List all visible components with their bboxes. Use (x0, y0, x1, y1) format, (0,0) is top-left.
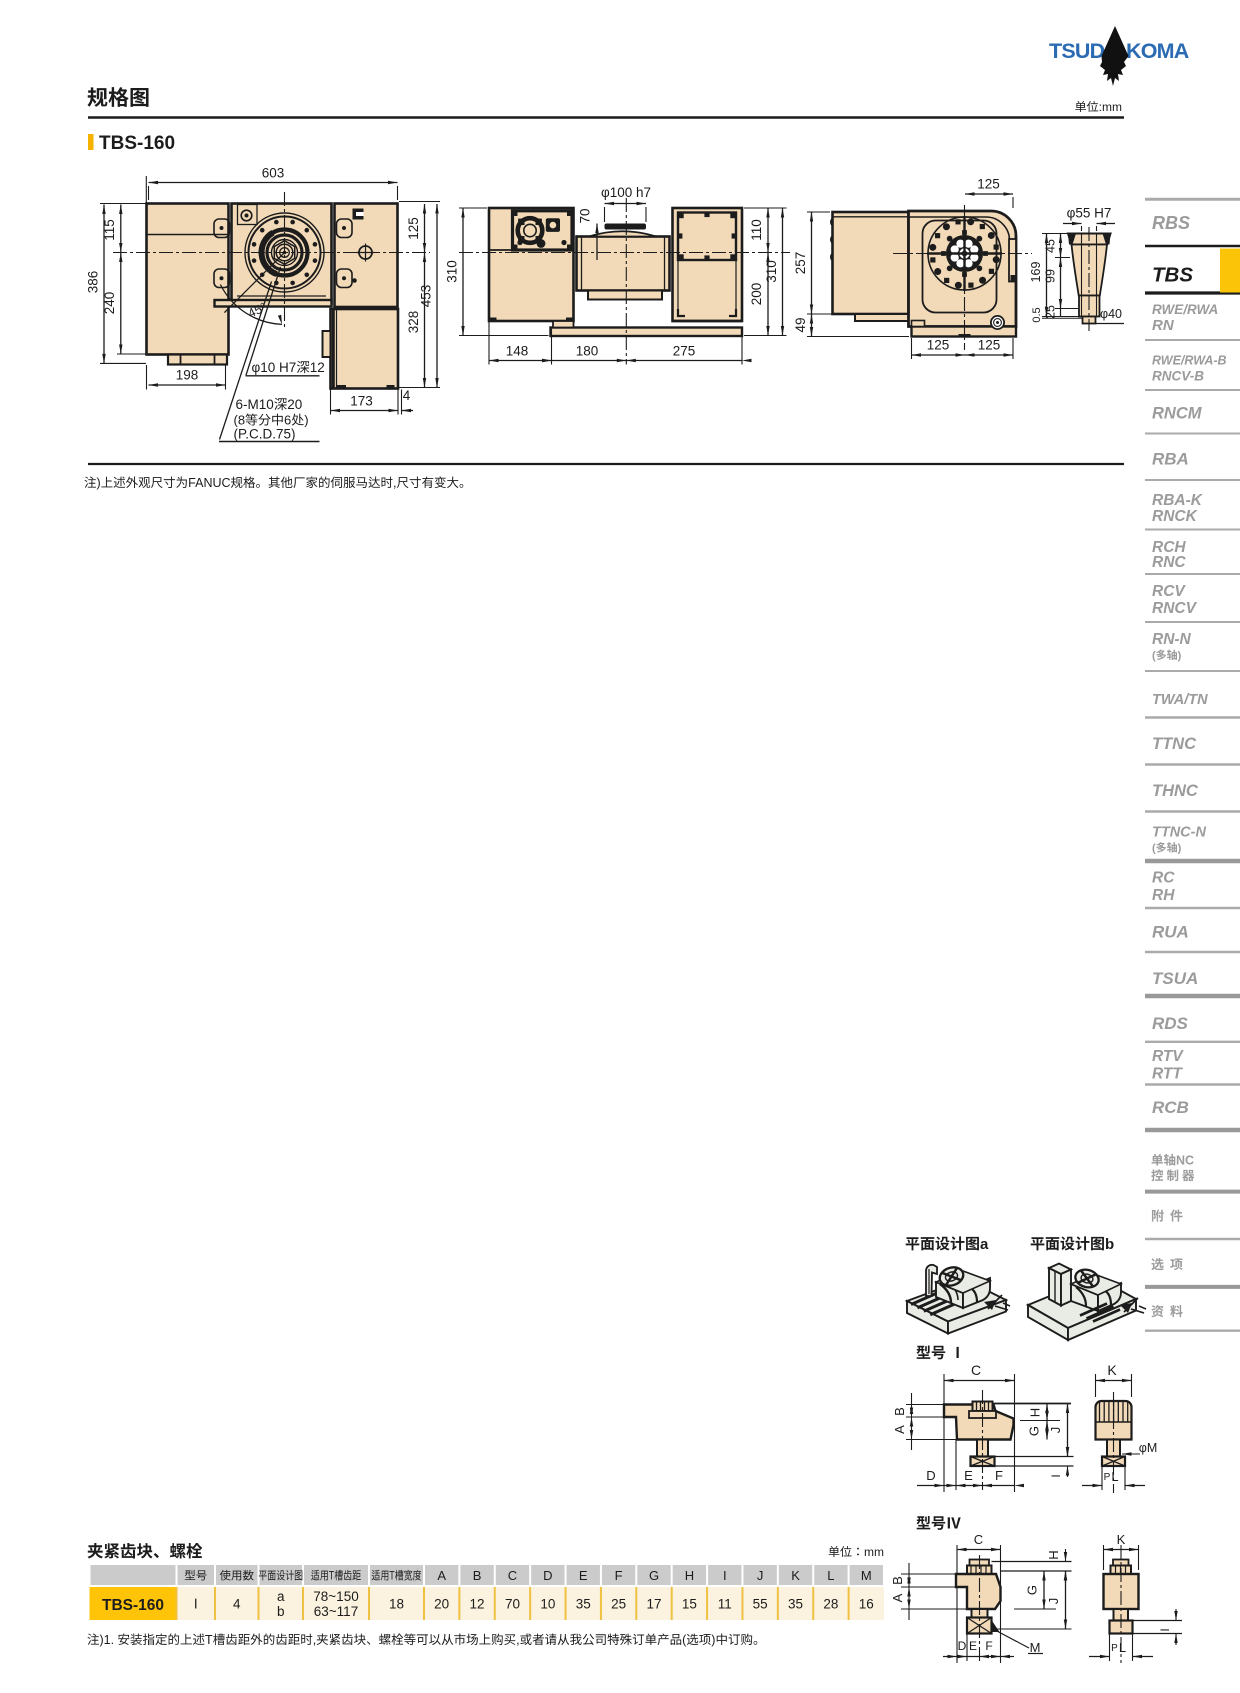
svg-text:L: L (1119, 1637, 1126, 1656)
svg-text:单位:mm: 单位:mm (1075, 98, 1122, 115)
svg-text:φM: φM (1139, 1437, 1158, 1456)
svg-text:(多轴): (多轴) (1152, 840, 1182, 856)
svg-text:RH: RH (1152, 883, 1175, 905)
svg-text:257: 257 (789, 252, 809, 275)
svg-text:M: M (861, 1565, 872, 1584)
svg-text:275: 275 (673, 340, 696, 360)
svg-text:G: G (1022, 1585, 1041, 1595)
svg-text:TBS-160: TBS-160 (102, 1593, 164, 1615)
svg-text:TTNC-N: TTNC-N (1152, 821, 1206, 842)
svg-text:(P.C.D.75): (P.C.D.75) (234, 423, 296, 443)
svg-text:(多轴): (多轴) (1152, 647, 1182, 663)
svg-text:20: 20 (434, 1593, 449, 1613)
svg-text:70: 70 (505, 1593, 520, 1613)
svg-text:63~117: 63~117 (314, 1600, 358, 1620)
svg-text:A: A (889, 1425, 908, 1434)
svg-text:4: 4 (233, 1593, 241, 1613)
svg-text:17: 17 (646, 1593, 661, 1613)
svg-text:RBS: RBS (1152, 209, 1190, 235)
svg-text:L: L (1111, 1466, 1118, 1485)
svg-text:φ55 H7: φ55 H7 (1067, 202, 1112, 222)
svg-text:L: L (827, 1565, 834, 1584)
svg-text:386: 386 (82, 271, 102, 294)
svg-text:注)上述外观尺寸为FANUC规格。其他厂家的伺服马达时,尺寸: 注)上述外观尺寸为FANUC规格。其他厂家的伺服马达时,尺寸有变大。 (84, 472, 472, 491)
svg-text:夹紧齿块、螺栓: 夹紧齿块、螺栓 (87, 1538, 203, 1562)
svg-text:TWA/TN: TWA/TN (1152, 688, 1208, 709)
svg-text:16: 16 (859, 1593, 874, 1613)
svg-text:TSUA: TSUA (1152, 964, 1198, 989)
svg-text:55: 55 (753, 1593, 768, 1613)
svg-text:11: 11 (718, 1593, 732, 1613)
svg-text:平面设计图b: 平面设计图b (1030, 1233, 1114, 1254)
svg-text:125: 125 (927, 334, 950, 354)
svg-text:TSUD: TSUD (1049, 34, 1105, 65)
svg-text:型号 Ⅰ: 型号 Ⅰ (916, 1342, 965, 1363)
svg-text:H: H (1025, 1408, 1044, 1417)
svg-text:TTNC: TTNC (1152, 730, 1197, 754)
svg-text:RNC: RNC (1152, 550, 1186, 572)
svg-text:平面设计图a: 平面设计图a (905, 1233, 989, 1254)
svg-text:125: 125 (978, 334, 1001, 354)
svg-text:H: H (1043, 1550, 1062, 1559)
svg-text:RCB: RCB (1152, 1093, 1189, 1118)
svg-text:φ100 h7: φ100 h7 (601, 181, 651, 201)
svg-text:310: 310 (441, 260, 461, 283)
svg-text:125: 125 (402, 217, 422, 240)
svg-text:D: D (926, 1465, 935, 1484)
svg-text:资料: 资料 (1151, 1301, 1189, 1320)
svg-text:THNC: THNC (1152, 777, 1199, 801)
svg-text:200: 200 (745, 283, 765, 306)
svg-text:C: C (508, 1565, 517, 1584)
svg-text:φ40: φ40 (1100, 303, 1122, 322)
svg-text:Ⅰ: Ⅰ (189, 1593, 203, 1613)
svg-text:E: E (579, 1565, 588, 1584)
svg-text:J: J (757, 1565, 764, 1584)
svg-text:J: J (1043, 1598, 1062, 1605)
svg-text:G: G (1024, 1426, 1043, 1436)
svg-text:99: 99 (1040, 269, 1059, 283)
svg-text:b: b (277, 1600, 285, 1620)
svg-text:附件: 附件 (1151, 1206, 1189, 1225)
svg-text:I: I (1047, 1474, 1064, 1477)
svg-text:173: 173 (350, 390, 373, 410)
svg-text:使用数: 使用数 (220, 1568, 255, 1584)
svg-text:110: 110 (745, 219, 765, 241)
svg-text:D: D (543, 1565, 552, 1584)
svg-text:453: 453 (415, 285, 435, 308)
svg-text:RBA: RBA (1152, 445, 1189, 470)
svg-text:I: I (1156, 1628, 1173, 1631)
svg-text:12: 12 (470, 1593, 485, 1613)
svg-text:C: C (974, 1529, 983, 1548)
svg-text:G: G (649, 1565, 659, 1584)
svg-text:适用T槽齿距: 适用T槽齿距 (311, 1566, 361, 1583)
svg-text:A: A (887, 1593, 906, 1602)
svg-text:F: F (985, 1637, 992, 1654)
svg-text:115: 115 (98, 219, 118, 241)
svg-text:E: E (964, 1465, 973, 1484)
svg-text:198: 198 (176, 364, 199, 384)
svg-text:15: 15 (682, 1593, 697, 1613)
svg-text:10: 10 (540, 1593, 555, 1613)
svg-text:F: F (995, 1465, 1003, 1484)
svg-text:RN: RN (1152, 314, 1175, 335)
svg-text:单位：mm: 单位：mm (828, 1543, 884, 1560)
svg-text:RDS: RDS (1152, 1009, 1189, 1034)
svg-text:28: 28 (823, 1593, 838, 1613)
svg-text:H: H (685, 1565, 694, 1584)
svg-text:35: 35 (576, 1593, 591, 1613)
svg-text:E: E (969, 1637, 977, 1654)
svg-text:148: 148 (506, 340, 529, 360)
svg-text:J: J (1045, 1427, 1064, 1434)
svg-text:B: B (473, 1565, 482, 1584)
svg-text:K: K (791, 1565, 800, 1584)
svg-text:RNCM: RNCM (1152, 400, 1203, 424)
svg-text:45: 45 (1040, 239, 1059, 253)
svg-text:RNCV: RNCV (1152, 596, 1198, 618)
svg-text:F: F (615, 1565, 623, 1584)
svg-text:I: I (723, 1565, 727, 1584)
svg-text:KOMA: KOMA (1126, 34, 1189, 65)
svg-text:控制器: 控制器 (1151, 1165, 1198, 1184)
svg-text:49: 49 (789, 317, 809, 332)
svg-text:TBS-160: TBS-160 (99, 128, 175, 155)
svg-text:240: 240 (98, 292, 118, 315)
svg-text:适用T槽宽度: 适用T槽宽度 (371, 1566, 421, 1583)
svg-text:0.5: 0.5 (1028, 307, 1044, 322)
svg-text:125: 125 (977, 173, 1000, 193)
svg-text:RUA: RUA (1152, 918, 1189, 943)
svg-text:4: 4 (403, 384, 411, 404)
svg-text:注)1. 安装指定的上述T槽齿距外的齿距时,夹紧齿块、螺栓等: 注)1. 安装指定的上述T槽齿距外的齿距时,夹紧齿块、螺栓等可以从市场上购买,或… (87, 1629, 765, 1648)
svg-text:328: 328 (402, 311, 422, 334)
svg-text:RNCV-B: RNCV-B (1152, 365, 1204, 385)
svg-text:D: D (958, 1637, 967, 1654)
svg-text:C: C (971, 1360, 981, 1380)
svg-text:型号Ⅳ: 型号Ⅳ (916, 1513, 961, 1534)
svg-text:P: P (1104, 1468, 1111, 1483)
svg-text:规格图: 规格图 (87, 82, 150, 112)
svg-text:A: A (437, 1565, 446, 1584)
svg-text:TBS: TBS (1152, 258, 1193, 288)
svg-text:平面设计图: 平面设计图 (258, 1566, 303, 1583)
svg-text:180: 180 (576, 340, 599, 360)
svg-text:310: 310 (760, 260, 780, 283)
svg-text:603: 603 (262, 162, 285, 182)
svg-text:B: B (889, 1407, 908, 1416)
svg-text:RN-N: RN-N (1152, 627, 1192, 649)
svg-text:RNCK: RNCK (1152, 504, 1199, 526)
svg-text:25: 25 (611, 1593, 626, 1613)
svg-text:P: P (1111, 1639, 1118, 1654)
svg-text:B: B (887, 1576, 906, 1585)
svg-text:选项: 选项 (1151, 1254, 1189, 1273)
svg-text:φ10 H7深12: φ10 H7深12 (252, 356, 325, 376)
svg-text:18: 18 (389, 1593, 404, 1613)
svg-text:型号: 型号 (184, 1568, 207, 1584)
svg-text:RTT: RTT (1152, 1062, 1183, 1084)
svg-text:35: 35 (788, 1593, 803, 1613)
svg-text:K: K (1107, 1360, 1117, 1380)
svg-text:70: 70 (574, 208, 594, 223)
